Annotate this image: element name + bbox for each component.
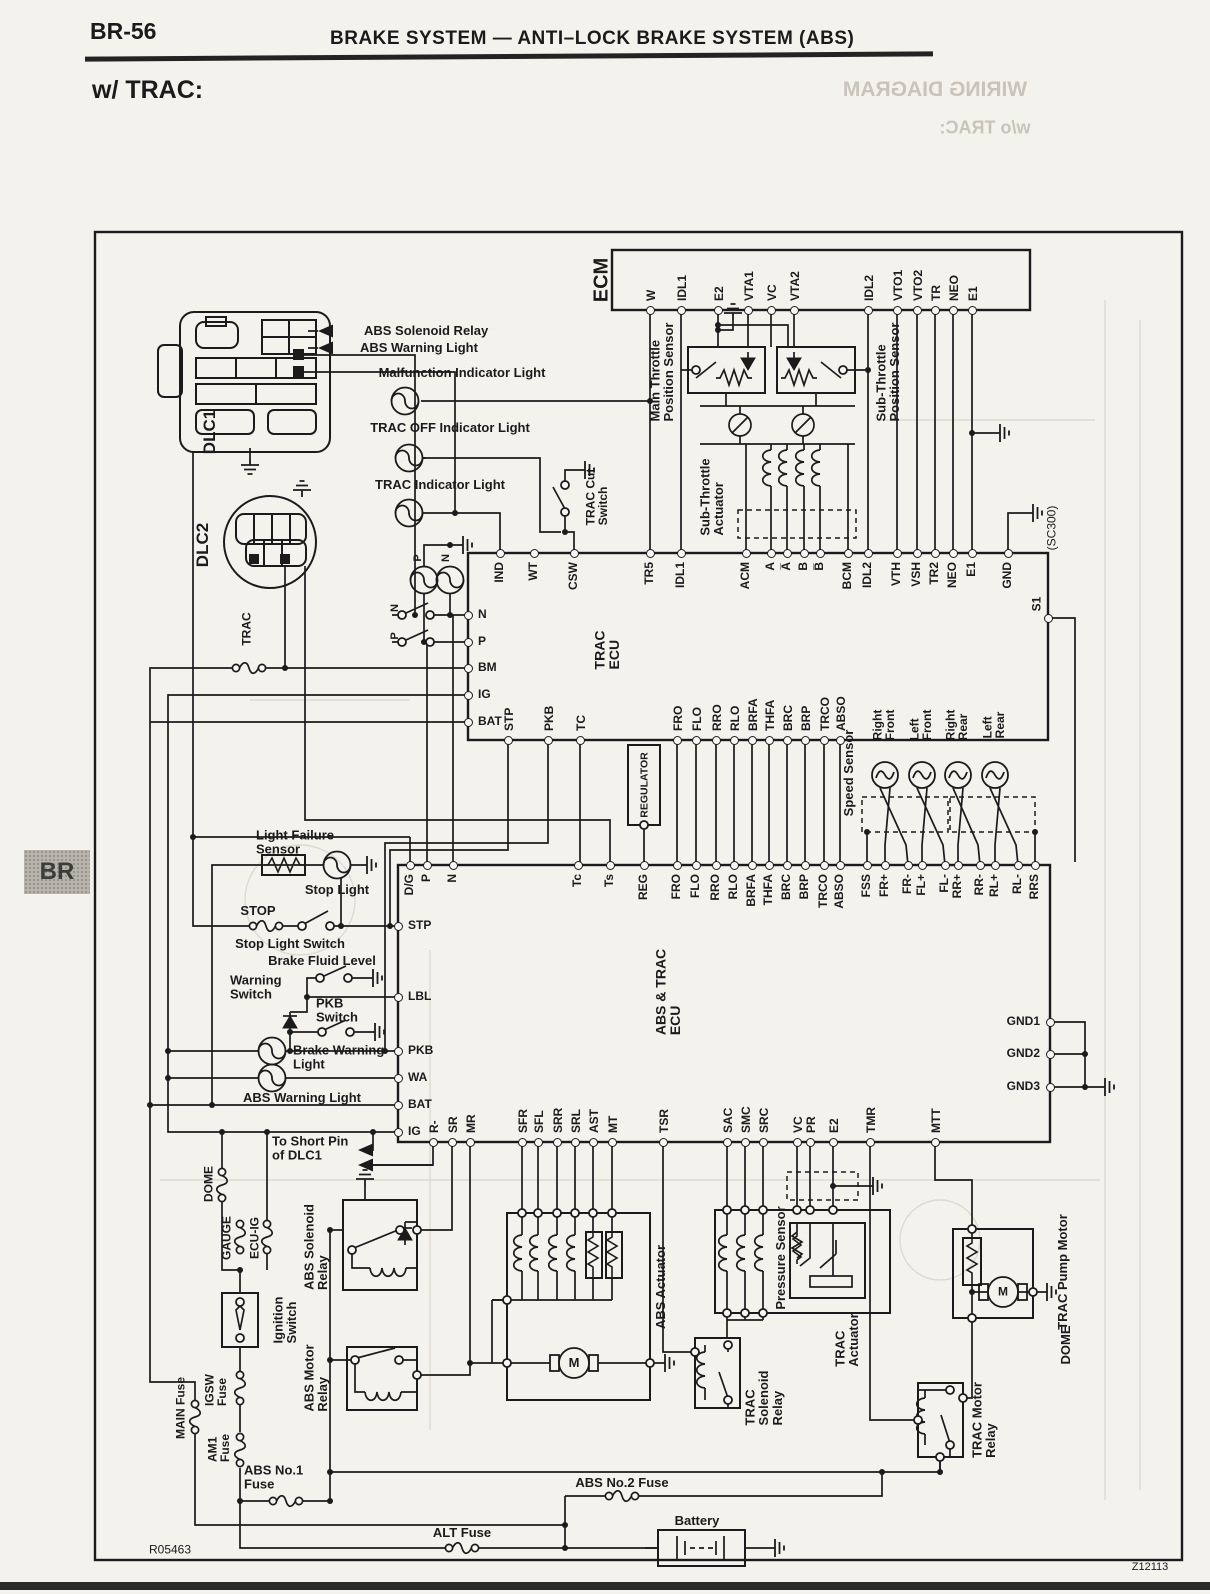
ecm-pins-label-W: W [644,290,658,301]
trac-ecu-left-pin-P [464,638,473,647]
abs-trac-ecu-bottom-pin-SFL [534,1138,543,1147]
pressure-sensor: Pressure Sensor [774,1206,788,1309]
abs-motor-letter: M [569,1356,580,1370]
trac-ecu-bottom-label-BRFA: BRFA [746,698,760,731]
n-bulb-label: N [441,554,453,562]
abs-trac-ecu-left-label-PKB: PKB [408,1043,433,1057]
trac-off-indicator-bulb-icon [396,445,423,472]
abs-motor-relay: ABS Motor Relay [302,1344,329,1411]
ecm-pins-label-IDL2: IDL2 [862,275,876,301]
abs-trac-ecu-bottom-pin-VC [793,1138,802,1147]
abs-trac-ecu-top-label-Ts: Ts [602,874,616,887]
abs-trac-ecu-bottom-label-SRL: SRL [569,1109,583,1133]
trac-ecu-bottom-pin-BRC [783,736,792,745]
abs-trac-ecu-top-pin-Ts [606,861,615,870]
trac-ecu-top-label-VSH: VSH [909,562,923,587]
abs-trac-ecu-bottom-pin-SRL [571,1138,580,1147]
ecm-pins-label-VTA2: VTA2 [788,271,802,301]
abs-trac-ecu-top-pin-RR+ [954,861,963,870]
abs-trac-ecu-top-pin-FSS [863,861,872,870]
abs-trac-ecu-top-label-FLO: FLO [688,874,702,898]
shield-boxes [738,510,1035,1200]
trac-ecu-top-pin-GND [1004,549,1013,558]
abs-trac-ecu-top-pin-TRCO [820,861,829,870]
stop-light-switch: Stop Light Switch [235,937,345,951]
ecm-pins-pin-NEO [949,306,958,315]
sub-throttle-sensor: Sub-Throttle Position Sensor [874,323,901,422]
abs-trac-ecu-right-pin-GND2 [1046,1050,1055,1059]
abs-trac-ecu-top-label-RR+: RR+ [950,874,964,898]
ecm-pins-pin-VTA2 [790,306,799,315]
trac-cut-switch: TRAC Cut Switch [584,469,609,526]
trac-ecu-top-pin-WT [530,549,539,558]
dlc1: DLC1 [201,410,219,454]
abs-trac-ecu-bottom-pin-MTT [931,1138,940,1147]
abs-trac-ecu-bottom-pin-MT [608,1138,617,1147]
abs-trac-ecu-bottom-pin-SRR [553,1138,562,1147]
abs-trac-ecu-top-pin-RR- [976,861,985,870]
n-switch-label: N [390,604,402,612]
abs-trac-ecu-top-label-D/G: D/G [402,874,416,895]
abs-trac-ecu-top-pin-REG [640,861,649,870]
ecm-pins-label-E2: E2 [712,286,726,301]
trac-ecu-left-pin-BAT [464,718,473,727]
trac-ecu-left-label-BM: BM [478,660,497,674]
trac-ecu-left-label-BAT: BAT [478,714,502,728]
malfunction-indicator-light: Malfunction Indicator Light [379,366,546,380]
trac-ecu-top-pin-VSH [913,549,922,558]
abs-trac-ecu-top-pin-THFA [765,861,774,870]
abs-trac-ecu-top-label-BRC: BRC [779,874,793,900]
trac-ecu-bottom-pin-BRFA [748,736,757,745]
trac-ecu-top-label-VTH: VTH [889,562,903,586]
abs-trac-ecu-right-label-GND3: GND3 [1007,1079,1040,1093]
abs-trac-ecu-bottom-pin-E2 [829,1138,838,1147]
trac-ecu-bottom-label-ABSO: ABSO [834,696,848,731]
ecm-pins-label-VTO1: VTO1 [891,270,905,301]
speed-sensor-rr-icon [945,762,971,788]
trac-ecu-top-pin-B [800,549,809,558]
abs-no2-fuse: ABS No.2 Fuse [575,1476,668,1490]
igsw-fuse: IGSW Fuse [203,1374,228,1406]
abs-trac-ecu-top-label-FRO: FRO [669,874,683,899]
trac-ecu-top-pin-IDL2 [864,549,873,558]
abs-trac-ecu-bottom-label-SFL: SFL [532,1110,546,1133]
abs-trac-ecu-left-label-STP: STP [408,918,431,932]
trac-ecu-left-pin-IG [464,691,473,700]
trac-ecu-bottom-label-BRC: BRC [781,705,795,731]
abs-trac-ecu-bottom-pin-SRC [759,1138,768,1147]
trac-ecu-bottom-pin-FLO [692,736,701,745]
doc-number: R05463 [149,1544,191,1557]
abs-trac-ecu-top-pin-FR- [904,861,913,870]
trac-ecu-bottom-pin-RRO [712,736,721,745]
abs-trac-ecu-top-pin-FL+ [918,861,927,870]
trac-indicator-bulb-icon [396,500,423,527]
abs-trac-ecu-top-pin-BRP [801,861,810,870]
abs-trac-ecu-bottom-label-SAC: SAC [721,1108,735,1133]
ghost-dome: DOME [1059,1326,1073,1365]
trac-motor-relay: TRAC Motor Relay [970,1382,997,1458]
battery: Battery [675,1514,720,1528]
trac-ecu-top-label-IND: IND [492,562,506,583]
trac-ecu-top-label-A: A [763,562,777,571]
trac-ecu-left-label-P: P [478,634,486,648]
stop-fuse: STOP [240,904,275,918]
abs-trac-ecu-bottom-pin-R- [429,1138,438,1147]
abs-trac-ecu-bottom-label-R-: R- [427,1120,441,1133]
wiring-diagram-art [0,0,1210,1594]
trac-ecu-top-pin-BCM [844,549,853,558]
ecm-pins-pin-E1 [968,306,977,315]
trac-ecu-left-label-IG: IG [478,687,491,701]
abs-trac-ecu-top-label-FR-: FR- [900,874,914,894]
ecm-pins-pin-IDL1 [677,306,686,315]
abs-trac-ecu-top-label-P: P [419,874,433,882]
trac-ecu-top-pin-A̅ [783,549,792,558]
trac-ecu-top-label-CSW: CSW [566,562,580,590]
ghost-wiring-diagram: WIRING DIAGRAM [843,79,1027,101]
main-throttle-sensor: Main Throttle Position Sensor [648,323,675,422]
trac-ecu-bottom-label-RRO: RRO [710,704,724,731]
trac-ecu-bottom-label-RLO: RLO [728,706,742,731]
abs-trac-ecu-top-pin-FLO [692,861,701,870]
speed-sensor-lr-icon [982,762,1008,788]
abs-trac-ecu-bottom-label-AST: AST [587,1109,601,1133]
brake-fluid-level: Brake Fluid Level [268,954,376,968]
trac-ecu-left-label-N: N [478,607,487,621]
abs-trac-ecu-bottom-label-TSR: TSR [657,1109,671,1133]
trac-ecu-bottom-pin-TC [576,736,585,745]
abs-trac-ecu-right-pin-GND3 [1046,1083,1055,1092]
trac-ecu-top-pin-NEO [949,549,958,558]
abs-trac-ecu-left-label-LBL: LBL [408,989,431,1003]
sc300: (SC300) [1046,506,1059,551]
s1-label: S1 [1031,597,1044,612]
abs-trac-ecu-top-pin-RL- [1014,861,1023,870]
abs-trac-ecu-top-label-RL+: RL+ [987,874,1001,897]
abs-trac-ecu-left-pin-LBL [394,993,403,1002]
regulator: REGULATOR [639,752,650,818]
trac-ecu-bottom-pin-STP [504,736,513,745]
trac-pump-motor: TRAC Pump Motor [1056,1214,1070,1330]
abs-trac-ecu-bottom-pin-AST [589,1138,598,1147]
abs-trac-ecu-top-pin-ABSO [836,861,845,870]
ecm-title: ECM [592,258,613,302]
trac-ecu-top-pin-ACM [742,549,751,558]
trac-ecu-top-label-ACM: ACM [738,562,752,589]
trac-motor-letter: M [998,1286,1008,1299]
abs-trac-ecu-top-label-N: N [445,874,459,883]
abs-warning-bulb-icon [259,1065,286,1092]
abs-trac-ecu-top-label-Tc: Tc [570,874,584,887]
trac-ecu-bottom-pin-BRP [801,736,810,745]
ecm-pins-pin-VTA1 [744,306,753,315]
sub-throttle-valve-icon [792,414,814,436]
abs-trac-ecu-top-pin-P [423,861,432,870]
trac-ecu-top-pin-VTH [893,549,902,558]
abs-trac-ecu-bottom-pin-SR [448,1138,457,1147]
brake-warning-light: Brake Warning Light [293,1043,384,1070]
trac-ecu-top-pin-E1 [968,549,977,558]
dlc2-connector [224,496,316,588]
trac-ecu-top-pin-IND [496,549,505,558]
ecm-pins-pin-VTO2 [913,306,922,315]
trac-ecu-bottom-label-THFA: THFA [763,700,777,731]
abs-trac-ecu-box [398,865,1050,1142]
abs-trac-ecu-left-pin-WA [394,1074,403,1083]
trac-ecu-top-label-TR2: TR2 [927,562,941,585]
trac-ecu-title: TRAC ECU [592,631,621,670]
ecm-pins-label-VTA1: VTA1 [742,271,756,301]
p-bulb-label: P [413,554,425,561]
ecm-pins-pin-E2 [714,306,723,315]
abs-trac-ecu-bottom-pin-TMR [866,1138,875,1147]
trac-ecu-bottom-pin-FRO [673,736,682,745]
trac-ecu-top-pin-CSW [570,549,579,558]
abs-trac-ecu-left-label-BAT: BAT [408,1097,432,1111]
trac-ecu-top-pin-TR2 [931,549,940,558]
abs-trac-ecu-top-pin-BRFA [748,861,757,870]
abs-trac-ecu-bottom-label-PR: PR [804,1116,818,1133]
to-short-pin: To Short Pin of DLC1 [272,1134,348,1161]
abs-trac-ecu-left-label-IG: IG [408,1124,421,1138]
abs-trac-ecu-left-label-WA: WA [408,1070,427,1084]
speed-sensor-lf-icon [909,762,935,788]
ecm-pins-label-TR: TR [929,285,943,301]
abs-trac-ecu-bottom-label-MT: MT [606,1116,620,1133]
p-switch-label: P [390,632,402,639]
abs-trac-ecu-top-pin-RRO [712,861,721,870]
abs-trac-ecu-bottom-pin-TSR [659,1138,668,1147]
am1-fuse: AM1 Fuse [206,1434,231,1462]
stop-light: Stop Light [305,883,369,897]
abs-trac-ecu-top-label-RRO: RRO [708,874,722,901]
abs-trac-ecu-top-pin-RRS [1031,861,1040,870]
ecm-pins-pin-IDL2 [864,306,873,315]
abs-trac-ecu-bottom-label-E2: E2 [827,1118,841,1133]
trac-ecu-top-pin-A [767,549,776,558]
abs-warning-light-callout: ABS Warning Light [360,341,478,355]
abs-trac-ecu-bottom-label-SRC: SRC [757,1108,771,1133]
trac-ecu-top-label-B̅: B̅ [812,562,826,571]
abs-trac-ecu-top-label-FR+: FR+ [877,874,891,897]
abs-trac-ecu-bottom-label-SFR: SFR [516,1109,530,1133]
speed-lr: Left Rear [981,712,1006,739]
trac-ecu-bottom-label-STP: STP [502,708,516,731]
trac-solenoid-relay: TRAC Solenoid Relay [744,1371,785,1426]
trac-ecu-top-pin-B̅ [816,549,825,558]
trac-ecu-bottom-label-PKB: PKB [542,706,556,731]
trac-ecu-bottom-pin-ABSO [836,736,845,745]
ecm-pins-pin-TR [931,306,940,315]
trac-ecu-top-label-IDL1: IDL1 [673,562,687,588]
wires [150,310,1098,1560]
alt-fuse: ALT Fuse [433,1526,491,1540]
sub-throttle-actuator: Sub-Throttle Actuator [698,458,725,535]
abs-trac-ecu-top-pin-N [449,861,458,870]
trac-ecu-top-label-E1: E1 [964,562,978,577]
trac-ecu-bottom-pin-PKB [544,736,553,745]
trac-ecu-left-pin-BM [464,664,473,673]
ecu-ig-fuse: ECU-IG [249,1217,262,1259]
n-indicator-bulb-icon [437,567,464,594]
trac-ecu-top-pin-TR5 [646,549,655,558]
ecm-pins-pin-VTO1 [893,306,902,315]
trac-ecu-bottom-pin-TRCO [820,736,829,745]
trac-ecu-top-label-B: B [796,562,810,571]
abs-warning-light2: ABS Warning Light [243,1091,361,1105]
ignition-switch: Ignition Switch [271,1297,298,1344]
abs-trac-ecu-bottom-pin-PR [806,1138,815,1147]
trac-ecu-top-label-GND: GND [1000,562,1014,589]
abs-trac-ecu-top-label-FL-: FL- [937,874,951,893]
speed-rf: Right Front [871,710,896,741]
abs-trac-ecu-top-pin-FR+ [881,861,890,870]
abs-trac-ecu-top-pin-RL+ [991,861,1000,870]
ecm-pins-pin-VC [767,306,776,315]
trac-ecu-bottom-pin-THFA [765,736,774,745]
abs-trac-ecu-bottom-pin-SAC [723,1138,732,1147]
abs-trac-ecu-bottom-label-SR: SR [446,1116,460,1133]
dlc2: DLC2 [194,523,212,567]
abs-trac-ecu-bottom-pin-MR [466,1138,475,1147]
abs-trac-ecu-bottom-label-MTT: MTT [929,1108,943,1133]
abs-trac-ecu-top-pin-FRO [673,861,682,870]
trac-ecu-bottom-label-TRCO: TRCO [818,697,832,731]
trac-indicator-light: TRAC Indicator Light [375,478,505,492]
trac-ecu-top-pin-IDL1 [677,549,686,558]
abs-trac-ecu-top-label-REG: REG [636,874,650,900]
ecm-pins-label-VTO2: VTO2 [911,270,925,301]
abs-trac-ecu-left-pin-IG [394,1128,403,1137]
trac-off-indicator-light: TRAC OFF Indicator Light [370,421,530,435]
speed-rr: Right Rear [944,710,969,741]
abs-trac-ecu-top-label-RLO: RLO [726,874,740,899]
speed-sensor-rf-icon [872,762,898,788]
abs-trac-ecu-bottom-pin-SMC [741,1138,750,1147]
ecm-pins-label-IDL1: IDL1 [675,275,689,301]
dome-fuse: DOME [203,1166,216,1202]
abs-trac-ecu-bottom-pin-SFR [518,1138,527,1147]
ghost-wo-trac: w/o TRAC: [940,119,1031,138]
abs-trac-ecu-left-pin-BAT [394,1101,403,1110]
abs-solenoid-relay: ABS Solenoid Relay [302,1204,329,1290]
trac-fuse: TRAC [241,612,254,645]
abs-no1-fuse: ABS No.1 Fuse [244,1463,303,1490]
abs-trac-ecu-top-label-ABSO: ABSO [832,874,846,909]
dlc1-connector [158,312,330,452]
abs-trac-ecu-title: ABS & TRAC ECU [653,949,682,1035]
main-fuse: MAIN Fuse [175,1377,188,1439]
trac-ecu-top-label-NEO: NEO [945,562,959,588]
abs-trac-ecu-top-label-FSS: FSS [859,874,873,897]
abs-trac-ecu-right-label-GND2: GND2 [1007,1046,1040,1060]
fig-number: Z12113 [1132,1562,1169,1574]
abs-trac-ecu-right-pin-GND1 [1046,1018,1055,1027]
abs-trac-ecu-top-pin-D/G [406,861,415,870]
abs-trac-ecu-top-label-BRFA: BRFA [744,874,758,907]
trac-ecu-bottom-label-FRO: FRO [671,706,685,731]
abs-trac-ecu-left-pin-STP [394,922,403,931]
gauge-fuse: GAUGE [221,1216,234,1260]
abs-trac-ecu-top-label-RRS: RRS [1027,874,1041,899]
abs-trac-ecu-left-pin-PKB [394,1047,403,1056]
trac-ecu-top-label-BCM: BCM [840,562,854,589]
ecm-pins-label-E1: E1 [966,286,980,301]
abs-trac-ecu-top-label-THFA: THFA [761,874,775,905]
trac-ecu-bottom-label-FLO: FLO [690,707,704,731]
abs-trac-ecu-top-label-TRCO: TRCO [816,874,830,908]
abs-trac-ecu-top-pin-RLO [730,861,739,870]
abs-trac-ecu-top-pin-FL- [941,861,950,870]
speed-lf: Left Front [908,710,933,741]
manual-page: BR-56 BRAKE SYSTEM — ANTI–LOCK BRAKE SYS… [0,0,1210,1594]
main-throttle-valve-icon [729,414,751,436]
abs-trac-ecu-bottom-label-SMC: SMC [739,1106,753,1133]
ecm-pins-label-NEO: NEO [947,275,961,301]
abs-trac-ecu-bottom-label-VC: VC [791,1116,805,1133]
trac-ecu-bottom-pin-RLO [730,736,739,745]
abs-trac-ecu-top-label-BRP: BRP [797,874,811,899]
abs-actuator: ABS Actuator [654,1245,668,1329]
ground-icons [241,304,1114,1557]
abs-solenoid-relay-callout: ABS Solenoid Relay [364,324,488,338]
abs-trac-ecu-bottom-label-TMR: TMR [864,1107,878,1133]
trac-ecu-left-pin-N [464,611,473,620]
light-failure-sensor: Light Failure Sensor [256,828,334,855]
ecm-pins-label-VC: VC [765,284,779,301]
trac-ecu-bottom-label-BRP: BRP [799,706,813,731]
trac-ecu-right-pin-S1 [1044,614,1053,623]
ecm-pins-pin-W [646,306,655,315]
trac-actuator: TRAC Actuator [833,1313,860,1366]
trac-ecu-top-label-WT: WT [526,562,540,581]
trac-ecu-top-label-A̅: A̅ [779,562,793,571]
abs-trac-ecu-top-pin-BRC [783,861,792,870]
abs-trac-ecu-right-label-GND1: GND1 [1007,1014,1040,1028]
abs-trac-ecu-top-pin-Tc [574,861,583,870]
abs-trac-ecu-top-label-FL+: FL+ [914,874,928,896]
pkb-switch: PKB Switch [316,996,358,1023]
abs-trac-ecu-bottom-label-SRR: SRR [551,1108,565,1133]
warning-switch: Warning Switch [230,973,282,1000]
trac-ecu-top-label-IDL2: IDL2 [860,562,874,588]
abs-trac-ecu-top-label-RR-: RR- [972,874,986,895]
trac-ecu-bottom-label-TC: TC [574,715,588,731]
trac-ecu-top-label-TR5: TR5 [642,562,656,585]
abs-trac-ecu-top-label-RL-: RL- [1010,874,1024,894]
abs-trac-ecu-bottom-label-MR: MR [464,1114,478,1133]
brake-warning-bulb-icon [259,1038,286,1065]
